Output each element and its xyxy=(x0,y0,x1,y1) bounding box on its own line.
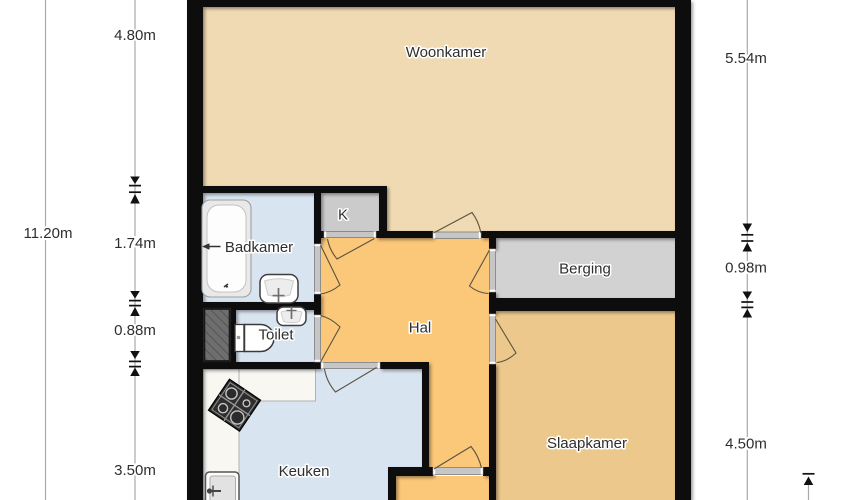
svg-text:11.20m: 11.20m xyxy=(24,225,73,242)
svg-text:Toilet: Toilet xyxy=(258,327,294,344)
svg-text:3.50m: 3.50m xyxy=(114,462,156,479)
svg-text:0.88m: 0.88m xyxy=(114,322,156,339)
svg-text:1.74m: 1.74m xyxy=(114,235,156,252)
svg-text:0.98m: 0.98m xyxy=(725,260,767,277)
svg-text:4.50m: 4.50m xyxy=(725,436,767,453)
svg-text:Hal: Hal xyxy=(409,320,432,337)
svg-text:Slaapkamer: Slaapkamer xyxy=(547,435,627,452)
svg-text:K: K xyxy=(338,207,348,224)
svg-text:Berging: Berging xyxy=(559,261,611,278)
svg-text:Woonkamer: Woonkamer xyxy=(406,44,487,61)
svg-text:Badkamer: Badkamer xyxy=(225,239,293,256)
svg-text:4.80m: 4.80m xyxy=(114,27,156,44)
svg-text:5.54m: 5.54m xyxy=(725,50,767,67)
svg-text:Keuken: Keuken xyxy=(279,463,330,480)
